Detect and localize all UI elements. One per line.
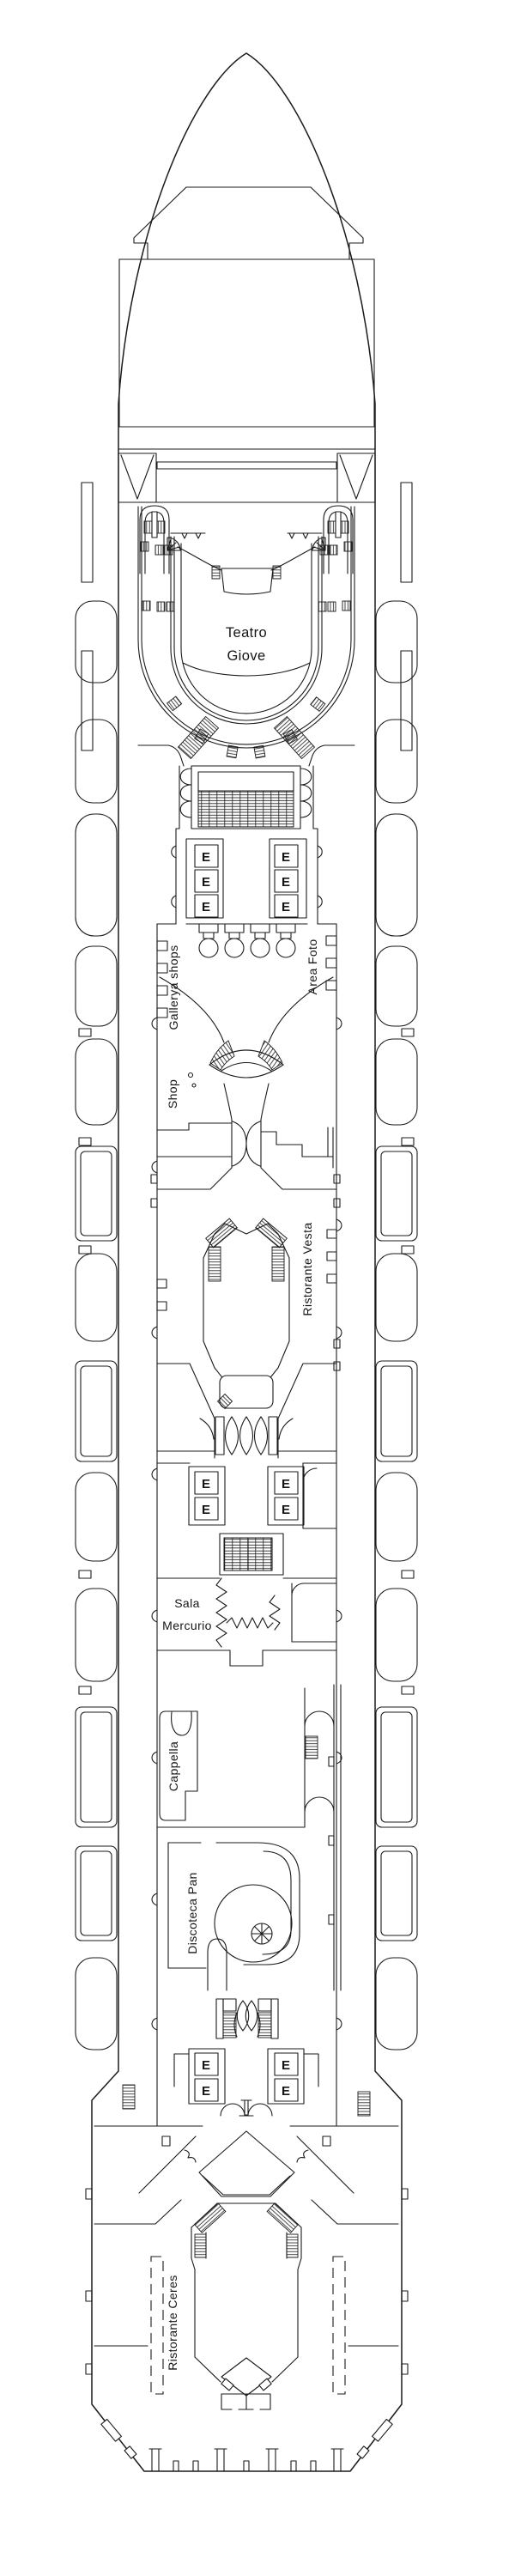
service-doors [200,1417,293,1455]
svg-text:E: E [202,2084,210,2099]
svg-text:E: E [202,900,210,914]
svg-text:E: E [202,850,210,865]
teatro-giove: Teatro Giove [138,506,354,766]
ristorante-vesta: Ristorante Vesta [157,1218,336,1458]
label-sala-mercurio-line1: Sala [174,1596,200,1610]
svg-text:E: E [202,2058,210,2073]
label-galleria-shops: Gallerya shops [167,945,180,1030]
cappella: Cappella [160,1711,197,1820]
label-cappella: Cappella [167,1741,180,1791]
svg-text:E: E [202,875,210,890]
label-shop: Shop [166,1079,179,1109]
svg-text:E: E [282,875,290,890]
deck-plan-svg: Teatro Giove E E E E E E Gallerya shops … [0,0,515,2576]
svg-text:E: E [202,1477,210,1492]
ristorante-ceres: Ristorante Ceres [86,2189,408,2409]
spiral-staircase-icon [251,1923,272,1944]
elevator-icon: E E E E [195,1472,298,1520]
svg-text:E: E [282,900,290,914]
promenade-walls [151,924,342,2126]
svg-text:E: E [202,1503,210,1517]
galley-diamond [94,2126,398,2224]
stern-windows [101,2419,392,2471]
forward-elevator-lobby: E E E E E E [157,839,336,924]
label-sala-mercurio-line2: Mercurio [162,1619,212,1632]
svg-text:E: E [282,1477,290,1492]
shop-display-cases [199,924,295,957]
theatre-entry-tower-port [140,506,169,574]
hull-outline [92,53,402,2471]
midship-elevator-lobby: E E E E [157,1463,336,1575]
aft-elevator-lobby: E E E E [123,1999,370,2116]
label-teatro-giove-line1: Teatro [226,625,267,641]
label-discoteca-pan: Discoteca Pan [185,1872,199,1953]
elevator-icon: E E E E [195,2053,298,2101]
svg-text:E: E [282,2058,290,2073]
label-ristorante-ceres: Ristorante Ceres [166,2275,179,2370]
discoteca-pan: Discoteca Pan [168,1843,300,1990]
sala-mercurio: Sala Mercurio [157,1578,336,1666]
label-teatro-giove-line2: Giove [227,648,265,664]
bow-deck [82,187,412,750]
lifeboats-starboard [376,601,417,2050]
fan-staircase [157,977,336,1189]
theatre-entry-tower-starboard [324,506,353,574]
galleria-shops: Gallerya shops Area Foto Shop [166,924,319,1109]
stage [172,766,323,924]
elevator-icon: E E E E E E [195,845,298,917]
svg-text:E: E [282,2084,290,2099]
label-ristorante-vesta: Ristorante Vesta [300,1222,314,1315]
svg-text:E: E [282,850,290,865]
svg-text:E: E [282,1503,290,1517]
lifeboats-port [76,601,117,2050]
